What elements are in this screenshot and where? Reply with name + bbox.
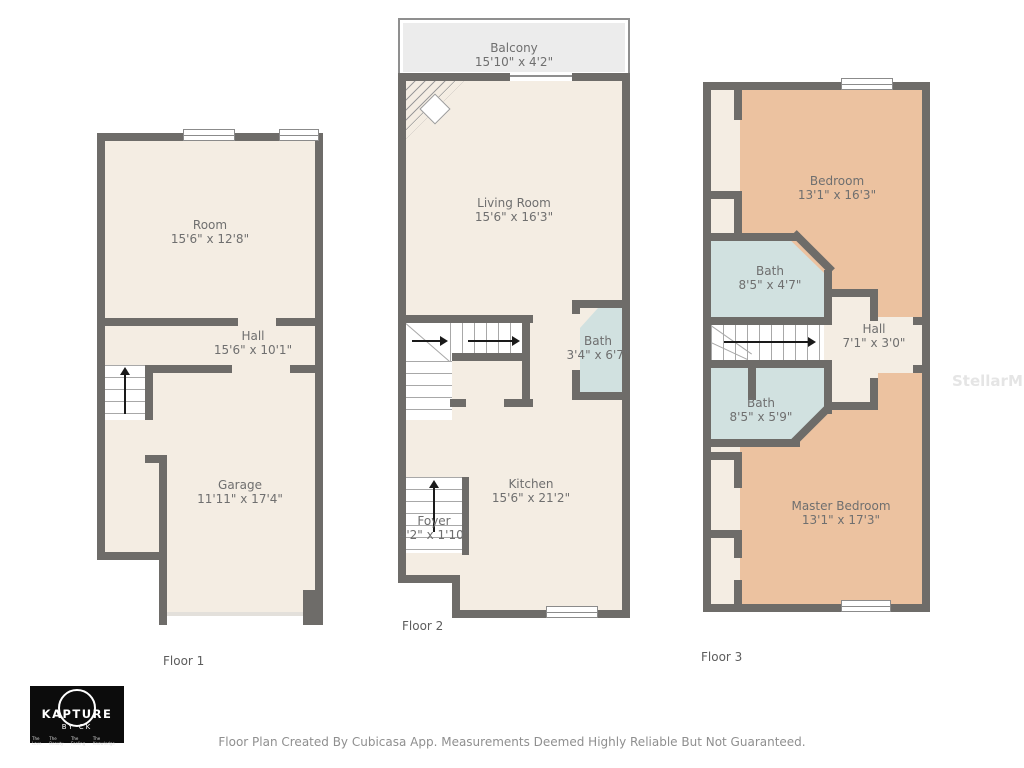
wall-segment — [97, 318, 238, 326]
room-name: Hall — [843, 322, 906, 336]
wall-segment — [913, 317, 922, 325]
room-dims: 15'6" x 10'1" — [214, 343, 292, 357]
window — [279, 129, 319, 141]
wall-segment — [870, 297, 878, 321]
room-label-kitchen: Kitchen 15'6" x 21'2" — [492, 477, 570, 505]
room-label-living-room: Living Room 15'6" x 16'3" — [475, 196, 553, 224]
stair-arrow-up-icon — [120, 367, 130, 375]
window — [841, 600, 891, 612]
room-dims: 15'10" x 4'2" — [475, 55, 553, 69]
room-name: Bath — [567, 334, 630, 348]
logo-sub: BY CK — [30, 723, 124, 731]
wall-segment — [145, 365, 232, 373]
wall-segment — [504, 399, 533, 407]
room-label-balcony: Balcony 15'10" x 4'2" — [475, 41, 553, 69]
room-name: Living Room — [475, 196, 553, 210]
wall-segment — [303, 590, 323, 625]
room-label-garage: Garage 11'11" x 17'4" — [197, 478, 283, 506]
room-dims: 15'6" x 12'8" — [171, 232, 249, 246]
room-label-master-bedroom: Master Bedroom 13'1" x 17'3" — [791, 499, 890, 527]
wall-segment — [734, 580, 742, 604]
wall-segment — [159, 458, 167, 625]
room-label-bath-top: Bath 8'5" x 4'7" — [739, 264, 802, 292]
wall-segment — [315, 133, 323, 625]
logo-tagline: The Feeling — [71, 736, 93, 746]
floor2-staircase-lower — [406, 361, 452, 420]
kapture-logo: KAPTURE BY CK The Love The Beauty The Fe… — [30, 686, 124, 743]
wall-segment — [703, 452, 742, 460]
room-dims: 15'6" x 16'3" — [475, 210, 553, 224]
room-dims: 13'1" x 17'3" — [791, 513, 890, 527]
wall-segment — [452, 610, 630, 618]
room-name: Master Bedroom — [791, 499, 890, 513]
wall-segment — [290, 365, 323, 373]
room-name: Bath — [739, 264, 802, 278]
room-name: Bath — [730, 396, 793, 410]
logo-taglines: The Love The Beauty The Feeling The Know… — [32, 736, 122, 746]
room-name: Balcony — [475, 41, 553, 55]
room-name: Foyer — [399, 514, 470, 528]
room-dims: 7'1" x 3'0" — [843, 336, 906, 350]
wall-segment — [734, 199, 742, 233]
floor1-garage-lower — [167, 560, 315, 613]
stair-arrow-shaft — [124, 374, 126, 414]
room-dims: 13'1" x 16'3" — [798, 188, 876, 202]
wall-segment — [398, 73, 510, 81]
wall-segment — [734, 90, 742, 120]
stair-arrow-shaft — [412, 340, 440, 342]
logo-tagline: The Love — [32, 736, 49, 746]
room-dims: 4'2" x 1'10" — [399, 528, 470, 542]
wall-segment — [703, 233, 800, 241]
wall-segment — [824, 402, 878, 410]
floor-1-label: Floor 1 — [163, 654, 204, 668]
room-dims: 3'4" x 6'7" — [567, 348, 630, 362]
stair-arrow-shaft — [468, 340, 512, 342]
footer-disclaimer: Floor Plan Created By Cubicasa App. Meas… — [0, 735, 1024, 749]
room-dims: 15'6" x 21'2" — [492, 491, 570, 505]
wall-segment — [734, 460, 742, 488]
wall-segment — [824, 289, 878, 297]
room-label-room: Room 15'6" x 12'8" — [171, 218, 249, 246]
wall-segment — [870, 378, 878, 402]
wall-segment — [572, 392, 622, 400]
room-name: Bedroom — [798, 174, 876, 188]
room-label-bedroom: Bedroom 13'1" x 16'3" — [798, 174, 876, 202]
stair-arrow-up-icon — [429, 480, 439, 488]
garage-door-sill — [167, 612, 303, 616]
room-dims: 8'5" x 5'9" — [730, 410, 793, 424]
floor-2-label: Floor 2 — [402, 619, 443, 633]
wall-segment — [572, 300, 622, 308]
wall-segment — [703, 530, 742, 538]
wall-segment — [97, 133, 105, 560]
room-label-bath: Bath 3'4" x 6'7" — [567, 334, 630, 362]
wall-segment — [703, 191, 742, 199]
room-name: Room — [171, 218, 249, 232]
wall-segment — [276, 318, 323, 326]
window — [546, 606, 598, 618]
mls-watermark: StellarMLS — [952, 372, 1024, 390]
wall-segment — [97, 552, 167, 560]
stair-arrow-right-icon — [808, 337, 816, 347]
wall-segment — [522, 315, 530, 407]
room-dims: 8'5" x 4'7" — [739, 278, 802, 292]
room-name: Kitchen — [492, 477, 570, 491]
wall-segment — [398, 575, 460, 583]
wall-segment — [406, 315, 533, 323]
room-label-hall: Hall 15'6" x 10'1" — [214, 329, 292, 357]
wall-segment — [922, 82, 930, 612]
wall-segment — [703, 317, 832, 325]
floor-3-label: Floor 3 — [701, 650, 742, 664]
window — [841, 78, 893, 90]
logo-tagline: The Beauty — [49, 736, 71, 746]
logo-brand: KAPTURE — [30, 707, 124, 721]
wall-segment — [703, 82, 930, 90]
room-name: Hall — [214, 329, 292, 343]
stair-arrow-shaft — [724, 341, 808, 343]
wall-segment — [398, 73, 406, 583]
wall-segment — [703, 439, 800, 447]
window — [183, 129, 235, 141]
wall-segment — [452, 353, 522, 361]
wall-segment — [913, 365, 922, 373]
room-label-foyer: Foyer 4'2" x 1'10" — [399, 514, 470, 542]
room-label-bath-bottom: Bath 8'5" x 5'9" — [730, 396, 793, 424]
room-dims: 11'11" x 17'4" — [197, 492, 283, 506]
stair-arrow-right-icon — [512, 336, 520, 346]
wall-segment — [145, 365, 153, 420]
wall-segment — [450, 399, 466, 407]
room-label-hall3: Hall 7'1" x 3'0" — [843, 322, 906, 350]
stair-arrow-right-icon — [440, 336, 448, 346]
floor-plan-page: Room 15'6" x 12'8" Hall 15'6" x 10'1" Ga… — [0, 0, 1024, 768]
wall-segment — [703, 360, 832, 368]
wall-segment — [703, 604, 930, 612]
wall-segment — [734, 538, 742, 558]
logo-tagline: The Knowledge — [93, 736, 122, 746]
room-name: Garage — [197, 478, 283, 492]
